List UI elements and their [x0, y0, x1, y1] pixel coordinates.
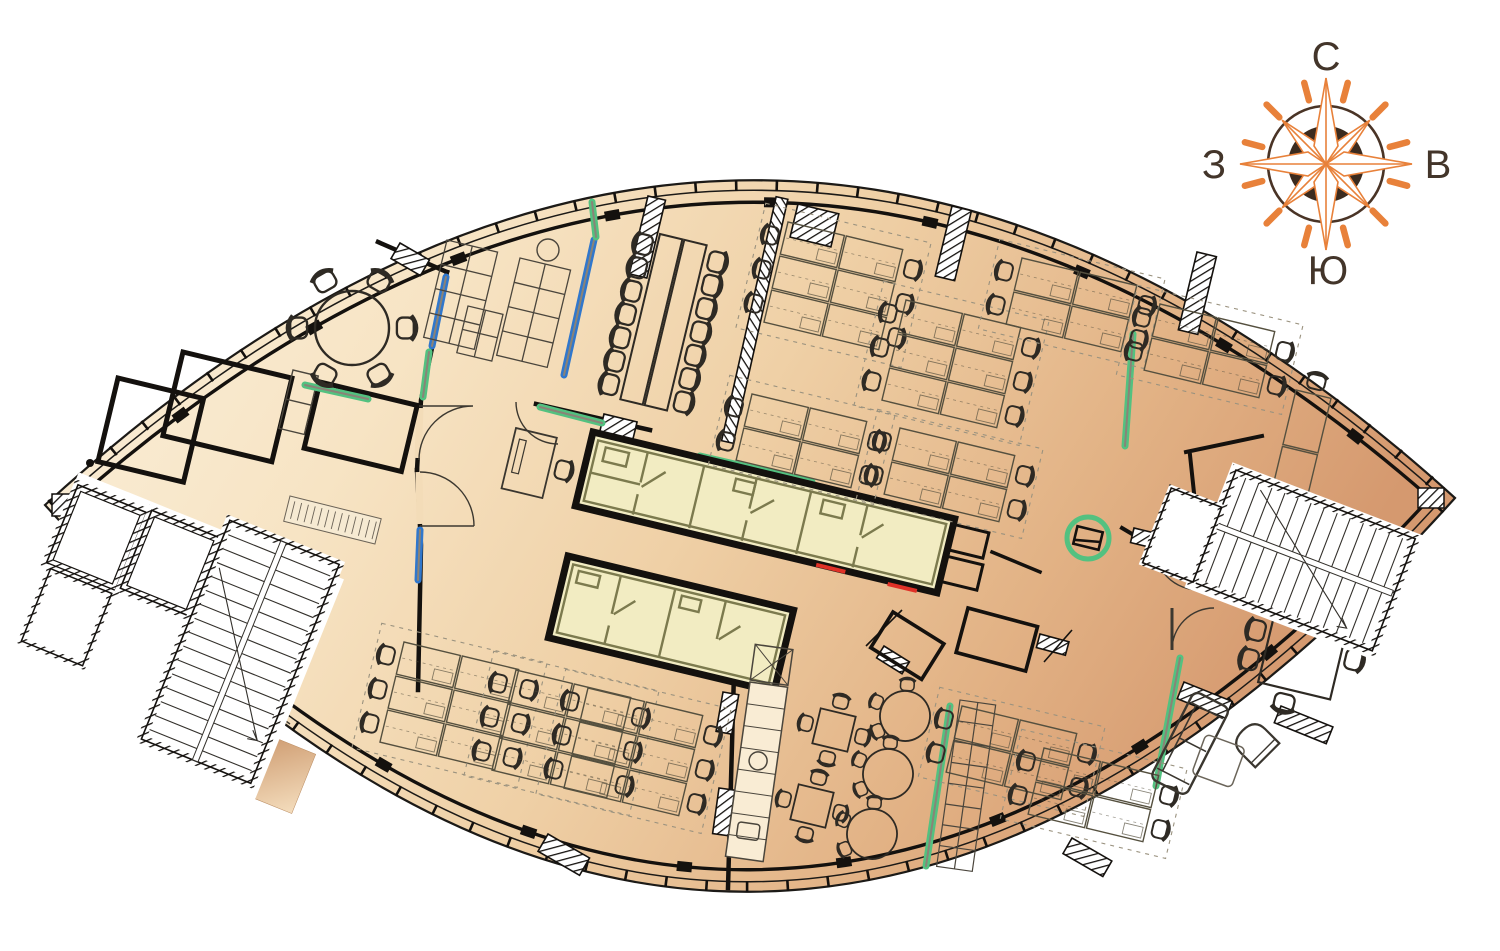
floor-plan-drawing: С В Ю З	[0, 0, 1500, 951]
compass-rose: С В Ю З	[1202, 35, 1451, 293]
armchair	[1231, 719, 1280, 768]
east-tip-pier	[1418, 488, 1444, 508]
floor-plan-page: С В Ю З	[0, 0, 1500, 951]
survey-dot	[86, 459, 94, 467]
compass-north-label: С	[1312, 35, 1341, 79]
compass-west-label: З	[1202, 143, 1226, 187]
compass-south-label: Ю	[1308, 249, 1348, 293]
compass-east-label: В	[1425, 143, 1452, 187]
side-table	[1192, 734, 1246, 788]
